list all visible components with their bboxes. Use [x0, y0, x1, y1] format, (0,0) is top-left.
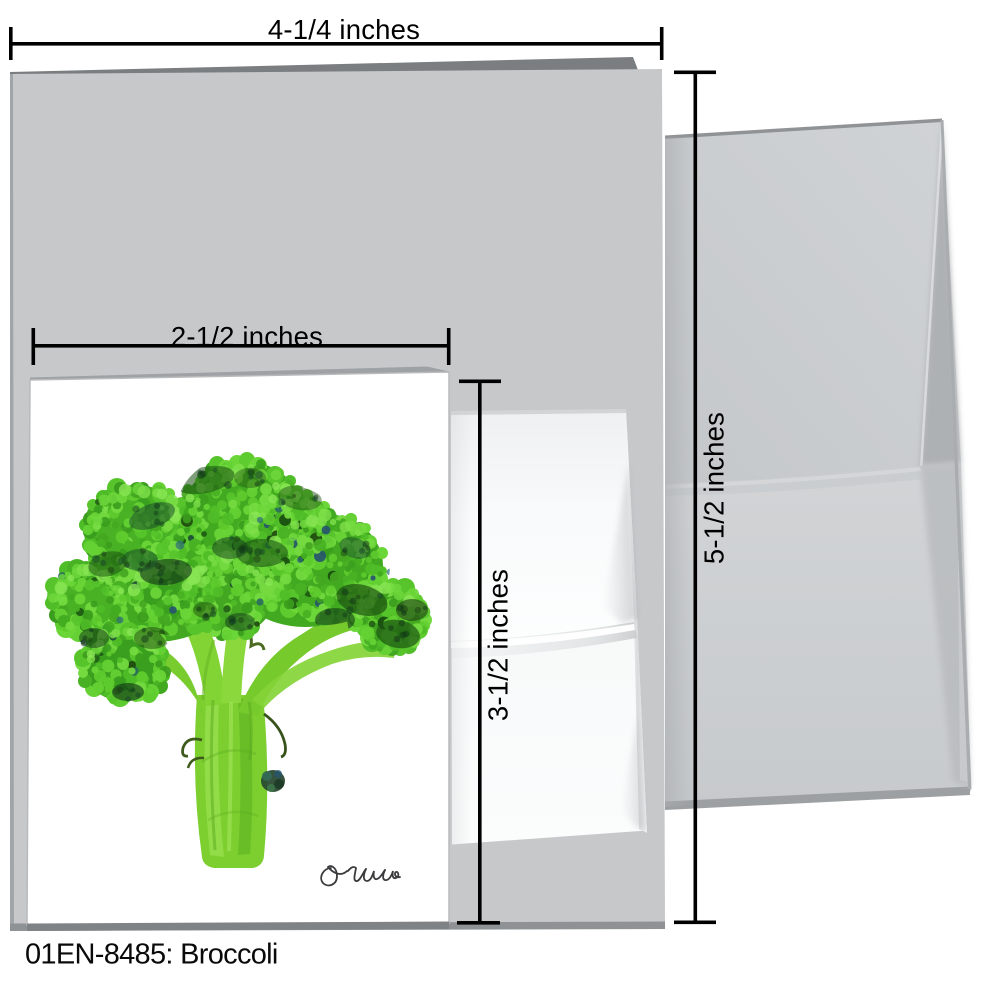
svg-text:4-1/4 inches: 4-1/4 inches — [268, 14, 420, 45]
svg-text:01EN-8485: Broccoli: 01EN-8485: Broccoli — [25, 939, 278, 971]
svg-text:5-1/2 inches: 5-1/2 inches — [699, 412, 730, 564]
svg-text:3-1/2 inches: 3-1/2 inches — [483, 569, 514, 721]
svg-text:2-1/2 inches: 2-1/2 inches — [171, 321, 323, 352]
